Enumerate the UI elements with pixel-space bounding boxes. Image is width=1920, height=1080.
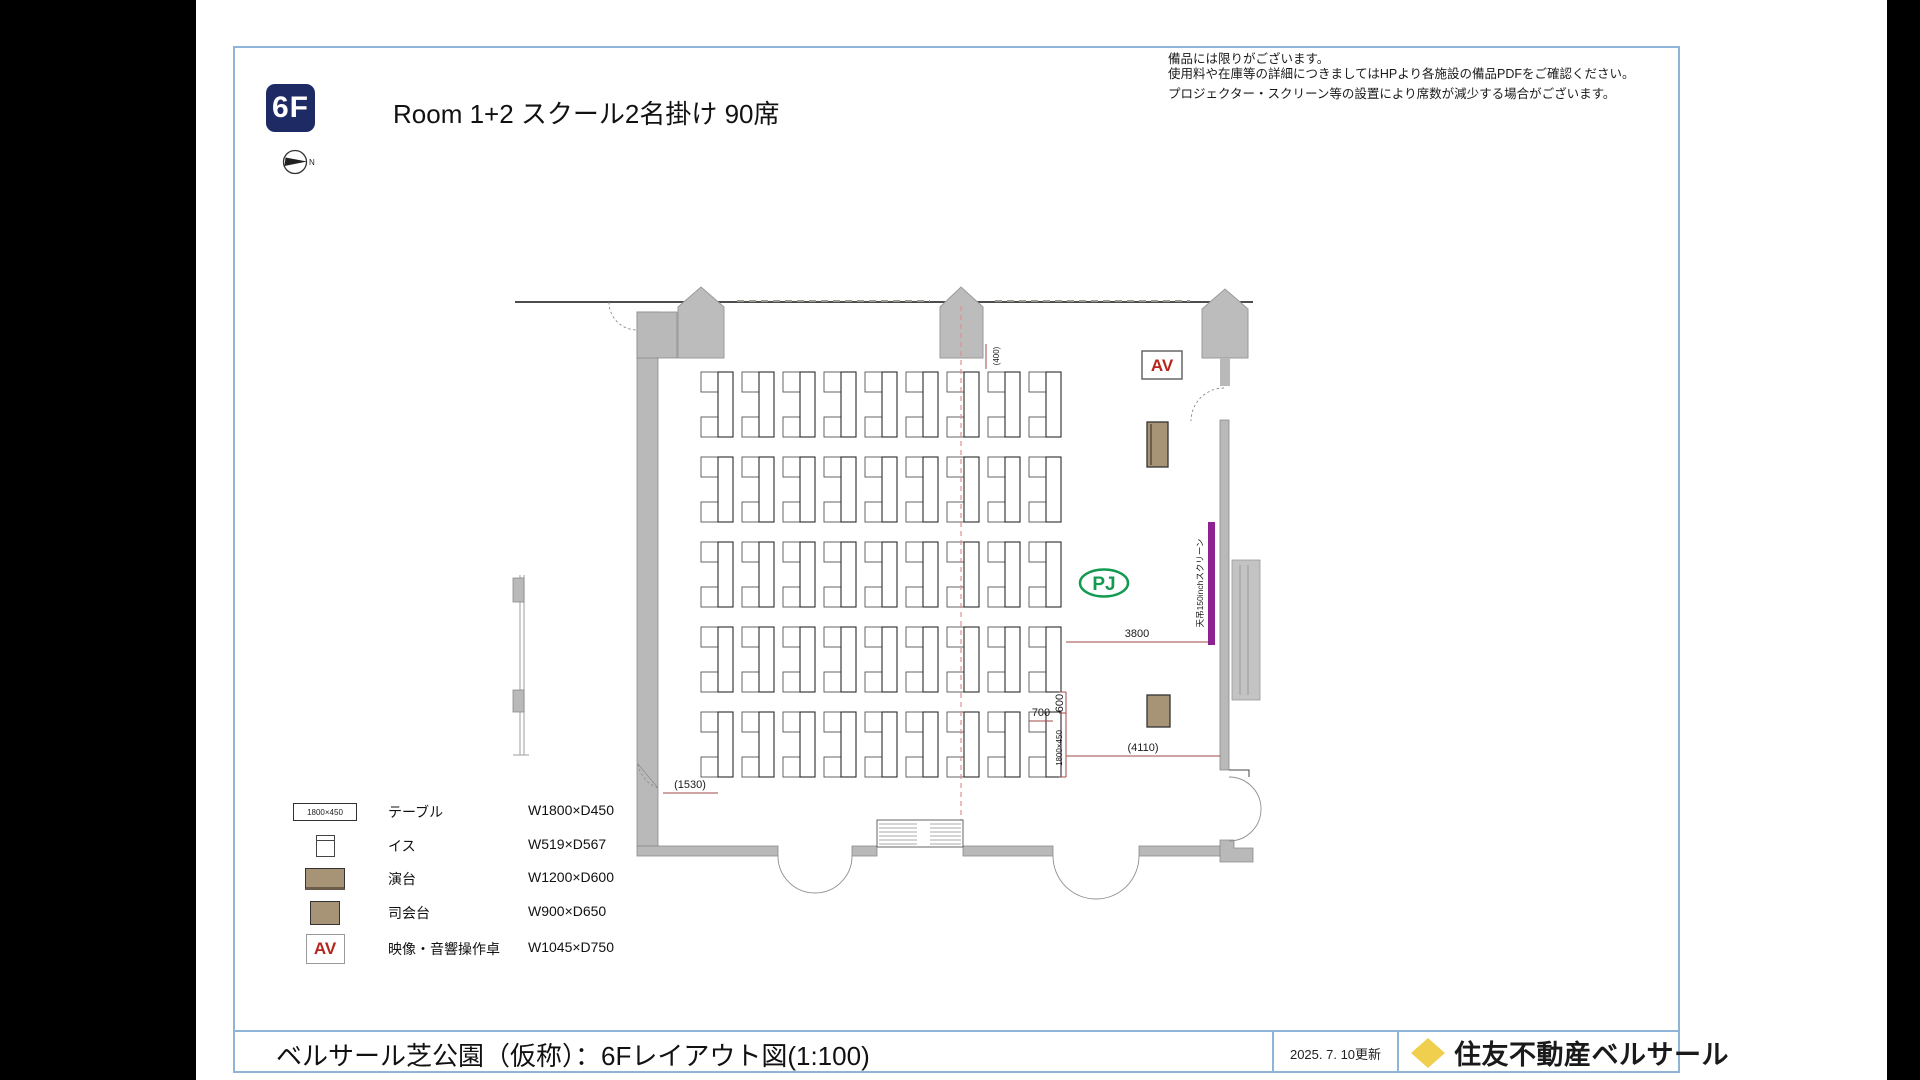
table <box>800 627 815 692</box>
dim-600: 600 <box>1054 694 1066 712</box>
chair <box>906 457 923 477</box>
table <box>923 457 938 522</box>
footer-cell-divider <box>1397 1030 1399 1073</box>
note-line-3: プロジェクター・スクリーン等の設置により席数が減少する場合がございます。 <box>1168 87 1635 102</box>
chair <box>783 542 800 562</box>
table <box>759 457 774 522</box>
chair <box>1029 672 1046 692</box>
table <box>1046 457 1061 522</box>
corridor-stub <box>513 578 524 602</box>
table <box>964 372 979 437</box>
legend-label: 司会台 <box>388 903 430 923</box>
table <box>718 372 733 437</box>
chair <box>865 372 882 392</box>
table <box>882 712 897 777</box>
table <box>1005 627 1020 692</box>
table <box>841 457 856 522</box>
table <box>923 372 938 437</box>
chair <box>824 502 841 522</box>
legend-size: W1200×D600 <box>528 869 614 885</box>
table <box>1005 542 1020 607</box>
chair <box>701 372 718 392</box>
pillar <box>678 287 724 358</box>
table <box>800 542 815 607</box>
table <box>718 627 733 692</box>
chair <box>742 542 759 562</box>
chair <box>865 712 882 732</box>
chair <box>783 757 800 777</box>
chair <box>865 502 882 522</box>
table <box>841 712 856 777</box>
table <box>964 542 979 607</box>
chair <box>824 587 841 607</box>
chair <box>742 372 759 392</box>
chair <box>865 542 882 562</box>
note-line-2: 使用料や在庫等の詳細につきましてはHPより各施設の備品PDFをご確認ください。 <box>1168 67 1635 82</box>
av-icon: AV <box>306 934 345 964</box>
table <box>841 542 856 607</box>
chair <box>824 457 841 477</box>
chair <box>988 502 1005 522</box>
brand-logo: 住友不動産ベルサール <box>1410 1033 1729 1072</box>
table-icon-text: 1800×450 <box>307 808 343 817</box>
north-compass-icon: N <box>281 147 315 179</box>
chair <box>988 757 1005 777</box>
legend-label: イス <box>388 836 416 856</box>
lectern <box>1147 422 1168 467</box>
chair <box>742 627 759 647</box>
chair <box>742 417 759 437</box>
left-wall-corner <box>637 312 677 358</box>
chair <box>988 372 1005 392</box>
chair <box>701 542 718 562</box>
dim-400: (400) <box>992 346 1001 365</box>
side-door-arc <box>1229 809 1261 841</box>
bottom-wall <box>637 846 778 856</box>
table <box>800 372 815 437</box>
table <box>718 542 733 607</box>
chair <box>742 587 759 607</box>
chair <box>824 757 841 777</box>
chair <box>906 712 923 732</box>
chair <box>988 712 1005 732</box>
corridor-stub <box>513 690 524 712</box>
av-desk: AV <box>1142 351 1182 379</box>
chair <box>783 457 800 477</box>
screenshot-stage: 6F Room 1+2 スクール2名掛け 90席 N 備品には限りがございます。… <box>0 0 1920 1080</box>
chair <box>824 372 841 392</box>
table <box>718 457 733 522</box>
chair <box>865 587 882 607</box>
table <box>1046 372 1061 437</box>
chair <box>1029 757 1046 777</box>
table <box>1046 627 1061 692</box>
chair-icon <box>316 835 335 857</box>
chair <box>783 627 800 647</box>
dim-4110: (4110) <box>1128 742 1159 754</box>
page-title: Room 1+2 スクール2名掛け 90席 <box>393 94 780 131</box>
table <box>1005 712 1020 777</box>
bottom-wall <box>852 846 877 856</box>
chair <box>865 417 882 437</box>
chair <box>906 757 923 777</box>
shaft-block <box>1232 560 1260 700</box>
chair <box>988 542 1005 562</box>
legend-label: 映像・音響操作卓 <box>388 939 500 959</box>
table <box>841 627 856 692</box>
chair <box>783 417 800 437</box>
chair <box>824 712 841 732</box>
chair <box>742 672 759 692</box>
chair <box>988 672 1005 692</box>
table <box>882 372 897 437</box>
floor-badge: 6F <box>266 84 315 132</box>
chair <box>865 757 882 777</box>
chair <box>824 672 841 692</box>
ceiling-screen <box>1208 522 1215 645</box>
chair <box>783 372 800 392</box>
table <box>923 712 938 777</box>
table <box>1046 542 1061 607</box>
av-desk-label: AV <box>1151 356 1174 375</box>
chair <box>701 587 718 607</box>
side-door-arc <box>1229 777 1261 809</box>
double-door-arc <box>1053 856 1096 899</box>
chair <box>1029 372 1046 392</box>
double-door-arc <box>778 856 815 893</box>
table <box>841 372 856 437</box>
table <box>800 712 815 777</box>
chair <box>742 757 759 777</box>
double-door-arc <box>1096 856 1139 899</box>
dim-1530: (1530) <box>674 779 706 791</box>
chair <box>1029 542 1046 562</box>
footer-divider <box>233 1030 1680 1032</box>
table <box>923 627 938 692</box>
wall-step <box>1229 770 1249 777</box>
mc-desk <box>1147 695 1170 727</box>
right-wall-corner <box>1220 840 1253 862</box>
left-door-arc <box>609 302 637 330</box>
chair <box>783 712 800 732</box>
legend-label: 演台 <box>388 869 416 889</box>
chair <box>783 502 800 522</box>
chair <box>824 542 841 562</box>
table <box>882 542 897 607</box>
chair <box>865 627 882 647</box>
chair <box>988 457 1005 477</box>
chair <box>906 542 923 562</box>
table <box>759 372 774 437</box>
table <box>882 457 897 522</box>
right-wall <box>1220 420 1229 770</box>
chair <box>701 502 718 522</box>
chair <box>906 502 923 522</box>
pillar <box>940 287 983 358</box>
chair <box>701 457 718 477</box>
north-label: N <box>309 158 315 167</box>
projector-label: PJ <box>1092 574 1115 595</box>
chair <box>783 672 800 692</box>
table <box>964 627 979 692</box>
floor-badge-label: 6F <box>272 91 309 125</box>
footer-updated-date: 2025. 7. 10更新 <box>1274 1044 1397 1063</box>
legend-size: W1800×D450 <box>528 802 614 818</box>
chair <box>701 757 718 777</box>
chair <box>824 627 841 647</box>
desk-grid <box>701 372 1061 777</box>
chair <box>906 417 923 437</box>
table-icon: 1800×450 <box>293 803 357 821</box>
brand-name: 住友不動産ベルサール <box>1454 1033 1729 1072</box>
floor-plan: 3800 (4110) (1530) 700 600 1800×450 (400… <box>500 270 1300 900</box>
legend-size: W900×D650 <box>528 903 606 919</box>
pillar <box>1202 289 1248 358</box>
chair <box>701 712 718 732</box>
note-line-1: 備品には限りがございます。 <box>1168 52 1635 67</box>
legend-size: W1045×D750 <box>528 939 614 955</box>
dim-table-size: 1800×450 <box>1055 730 1064 766</box>
chair <box>1029 502 1046 522</box>
table <box>759 627 774 692</box>
chair <box>742 712 759 732</box>
projector-marker: PJ <box>1080 570 1128 597</box>
chair <box>1029 457 1046 477</box>
table <box>882 627 897 692</box>
table <box>759 712 774 777</box>
chair <box>1029 587 1046 607</box>
table <box>800 457 815 522</box>
double-door-arc <box>815 856 852 893</box>
chair <box>783 587 800 607</box>
legend-size: W519×D567 <box>528 836 606 852</box>
table <box>1005 372 1020 437</box>
chair <box>701 627 718 647</box>
chair <box>824 417 841 437</box>
brand-diamond-icon <box>1410 1037 1446 1069</box>
mc-desk-icon <box>310 901 340 925</box>
table <box>964 712 979 777</box>
chair <box>988 417 1005 437</box>
chair <box>701 417 718 437</box>
chair <box>988 587 1005 607</box>
chair <box>906 672 923 692</box>
entry-door-arc <box>1191 388 1224 421</box>
chair <box>906 627 923 647</box>
chair <box>742 457 759 477</box>
chair <box>865 457 882 477</box>
footer-title: ベルサール芝公園（仮称）：6Fレイアウト図(1:100) <box>276 1036 870 1073</box>
chair <box>906 587 923 607</box>
dim-700: 700 <box>1032 707 1050 719</box>
wall-stub <box>1220 358 1230 386</box>
notes-block: 備品には限りがございます。 使用料や在庫等の詳細につきましてはHPより各施設の備… <box>1168 52 1635 102</box>
chair <box>906 372 923 392</box>
chair <box>1029 417 1046 437</box>
legend-label: テーブル <box>388 802 443 822</box>
bottom-wall <box>1139 846 1220 856</box>
chair <box>701 672 718 692</box>
chair <box>865 672 882 692</box>
lectern-icon <box>305 868 345 890</box>
chair <box>1029 627 1046 647</box>
table <box>964 457 979 522</box>
av-icon-text: AV <box>314 939 336 959</box>
table <box>923 542 938 607</box>
louver-unit <box>877 820 963 847</box>
dim-3800: 3800 <box>1125 628 1149 640</box>
bottom-wall <box>963 846 1053 856</box>
chair <box>988 627 1005 647</box>
table <box>718 712 733 777</box>
chair <box>742 502 759 522</box>
table <box>759 542 774 607</box>
table <box>1005 457 1020 522</box>
screen-label: 天吊150inchスクリーン <box>1195 539 1205 628</box>
